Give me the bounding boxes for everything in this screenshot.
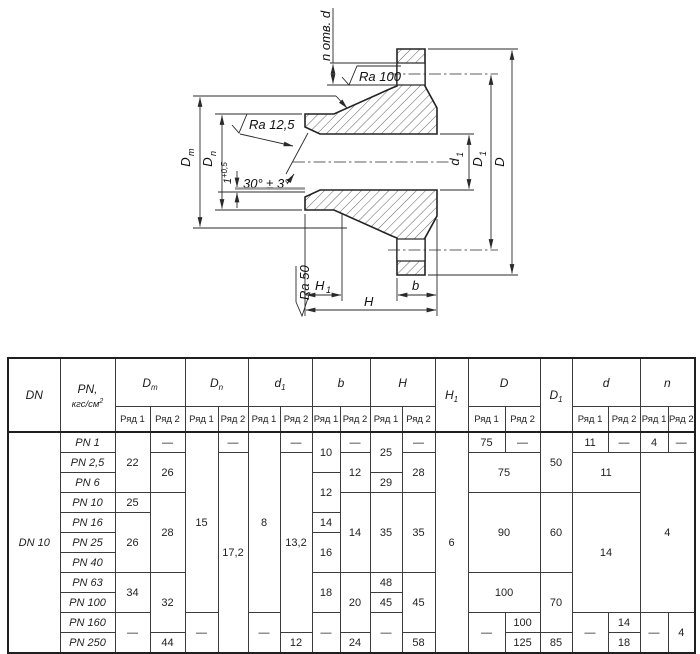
ra100-label: Ra 100 [359, 69, 402, 84]
pn-cell: PN 40 [60, 553, 115, 573]
column-header: H [370, 358, 435, 407]
dim-label-dn: D n [200, 151, 218, 167]
value-cell: 12 [312, 473, 340, 513]
dim-label-b: b [412, 278, 419, 293]
row-series-header: Ряд 2 [280, 407, 312, 433]
value-cell: 44 [150, 633, 185, 654]
pn-cell: PN 16 [60, 513, 115, 533]
value-cell: 18 [312, 573, 340, 613]
pn-cell: PN 160 [60, 613, 115, 633]
value-cell: — [150, 432, 185, 453]
value-cell: — [248, 613, 280, 654]
dim-label-h1: H 1 [315, 278, 331, 295]
column-header: Dm [115, 358, 185, 407]
row-series-header: Ряд 1 [185, 407, 218, 433]
svg-text:+0,5: +0,5 [220, 162, 229, 178]
value-cell: 24 [340, 633, 370, 654]
svg-text:H: H [315, 278, 325, 293]
column-header: b [312, 358, 370, 407]
row-series-header: Ряд 1 [468, 407, 505, 433]
value-cell: 29 [370, 473, 402, 493]
pn-cell: PN 250 [60, 633, 115, 654]
value-cell: 18 [608, 633, 640, 654]
row-series-header: Ряд 1 [248, 407, 280, 433]
value-cell: 26 [150, 453, 185, 493]
value-cell: 26 [115, 513, 150, 573]
pn-cell: PN 10 [60, 493, 115, 513]
column-header: Dn [185, 358, 248, 407]
value-cell: 10 [312, 432, 340, 473]
value-cell: 32 [150, 573, 185, 633]
value-cell: 35 [370, 493, 402, 573]
column-header: PN,кгс/см2 [60, 358, 115, 432]
row-series-header: Ряд 2 [402, 407, 435, 433]
chamfer-extension-line [286, 133, 308, 174]
technical-drawing: n отв. d Ra 100 Ra 12,5 30° ± 3° 1 +0,5 … [0, 0, 700, 357]
pn-cell: PN 63 [60, 573, 115, 593]
value-cell: 28 [150, 493, 185, 573]
value-cell: 75 [468, 453, 540, 493]
value-cell: 25 [370, 432, 402, 473]
value-cell: — [608, 432, 640, 453]
column-header: H1 [435, 358, 468, 432]
value-cell: — [640, 613, 668, 654]
ra50-label: Ra 50 [297, 265, 312, 300]
value-cell: 125 [505, 633, 540, 654]
pn-cell: PN 1 [60, 432, 115, 453]
column-header: D [468, 358, 540, 407]
column-header: n [640, 358, 695, 407]
value-cell: 12 [280, 633, 312, 654]
flange-drawing: n отв. d Ra 100 Ra 12,5 30° ± 3° 1 +0,5 … [0, 0, 700, 357]
value-cell: 50 [540, 432, 572, 493]
row-series-header: Ряд 2 [150, 407, 185, 433]
pn-cell: PN 2,5 [60, 453, 115, 473]
row-series-header: Ряд 1 [312, 407, 340, 433]
value-cell: 22 [115, 432, 150, 493]
value-cell: 17,2 [218, 453, 248, 654]
value-cell: 13,2 [280, 453, 312, 633]
row-series-header: Ряд 1 [115, 407, 150, 433]
flange-dimensions-table: DNPN,кгс/см2DmDnd1bHH1DD1dn Ряд 1Ряд 2Ря… [7, 357, 696, 654]
row-series-header: Ряд 1 [572, 407, 608, 433]
svg-text:m: m [186, 148, 196, 156]
value-cell: 45 [370, 593, 402, 613]
svg-text:Ra 50: Ra 50 [297, 265, 312, 300]
table-row: PN 102528143535906014 [8, 493, 695, 513]
value-cell: 28 [402, 453, 435, 493]
dim-label-h: H [364, 294, 374, 309]
value-cell: 48 [370, 573, 402, 593]
svg-text:D: D [178, 157, 193, 166]
flange-lower-section [305, 190, 437, 275]
column-header: d1 [248, 358, 312, 407]
pn-cell: PN 6 [60, 473, 115, 493]
value-cell: 25 [115, 493, 150, 513]
column-header: D1 [540, 358, 572, 432]
value-cell: 70 [540, 573, 572, 633]
dim-label-dm: D m [178, 148, 196, 167]
pn-cell: PN 25 [60, 533, 115, 553]
value-cell: — [468, 613, 505, 654]
ra125-label: Ra 12,5 [249, 117, 295, 132]
value-cell: 4 [640, 453, 695, 613]
value-cell: — [572, 613, 608, 654]
value-cell: 58 [402, 633, 435, 654]
row-series-header: Ряд 2 [340, 407, 370, 433]
dim-label-bigd: D [492, 157, 507, 166]
value-cell: 34 [115, 573, 150, 613]
value-cell: 20 [340, 573, 370, 633]
dn-cell: DN 10 [8, 432, 60, 653]
column-header: d [572, 358, 640, 407]
svg-text:n: n [208, 151, 218, 156]
row-series-header: Ряд 2 [668, 407, 695, 433]
value-cell: 85 [540, 633, 572, 654]
value-cell: — [218, 432, 248, 453]
value-cell: 14 [312, 513, 340, 533]
value-cell: 12 [340, 453, 370, 493]
value-cell: 100 [468, 573, 540, 613]
value-cell: — [402, 432, 435, 453]
pn-cell: PN 100 [60, 593, 115, 613]
value-cell: — [115, 613, 150, 654]
value-cell: 90 [468, 493, 540, 573]
value-cell: 60 [540, 493, 572, 573]
value-cell: 11 [572, 453, 640, 493]
dim-label-d1: d 1 [447, 152, 465, 166]
value-cell: 15 [185, 432, 218, 613]
value-cell: 8 [248, 432, 280, 613]
value-cell: — [505, 432, 540, 453]
value-cell: 45 [402, 573, 435, 633]
dim-label-bigd1: D 1 [470, 151, 488, 167]
column-header: DN [8, 358, 60, 432]
value-cell: 4 [668, 613, 695, 654]
svg-text:1: 1 [326, 285, 331, 295]
svg-text:1: 1 [478, 151, 488, 156]
value-cell: 16 [312, 533, 340, 573]
svg-text:1: 1 [455, 152, 465, 157]
svg-text:d: d [447, 158, 462, 166]
table-row: PN 2,52617,213,2122875114 [8, 453, 695, 473]
value-cell: 4 [640, 432, 668, 453]
svg-text:D: D [200, 157, 215, 166]
value-cell: — [668, 432, 695, 453]
value-cell: — [370, 613, 402, 654]
table-row: DN 10PN 122—15—8—10—25—675—5011—4— [8, 432, 695, 453]
value-cell: 14 [340, 493, 370, 573]
row-series-header: Ряд 2 [505, 407, 540, 433]
value-cell: 14 [572, 493, 640, 613]
value-cell: 35 [402, 493, 435, 573]
value-cell: — [280, 432, 312, 453]
value-cell: 75 [468, 432, 505, 453]
svg-text:D: D [492, 157, 507, 166]
value-cell: 6 [435, 432, 468, 653]
row-series-header: Ряд 2 [608, 407, 640, 433]
row-series-header: Ряд 1 [370, 407, 402, 433]
holes-count-label: n отв. d [318, 10, 333, 61]
value-cell: 11 [572, 432, 608, 453]
value-cell: — [185, 613, 218, 654]
svg-text:D: D [470, 157, 485, 166]
row-series-header: Ряд 1 [640, 407, 668, 433]
row-series-header: Ряд 2 [218, 407, 248, 433]
value-cell: 14 [608, 613, 640, 633]
value-cell: — [312, 613, 340, 654]
table-header: DNPN,кгс/см2DmDnd1bHH1DD1dn Ряд 1Ряд 2Ря… [8, 358, 695, 432]
value-cell: — [340, 432, 370, 453]
value-cell: 100 [505, 613, 540, 633]
